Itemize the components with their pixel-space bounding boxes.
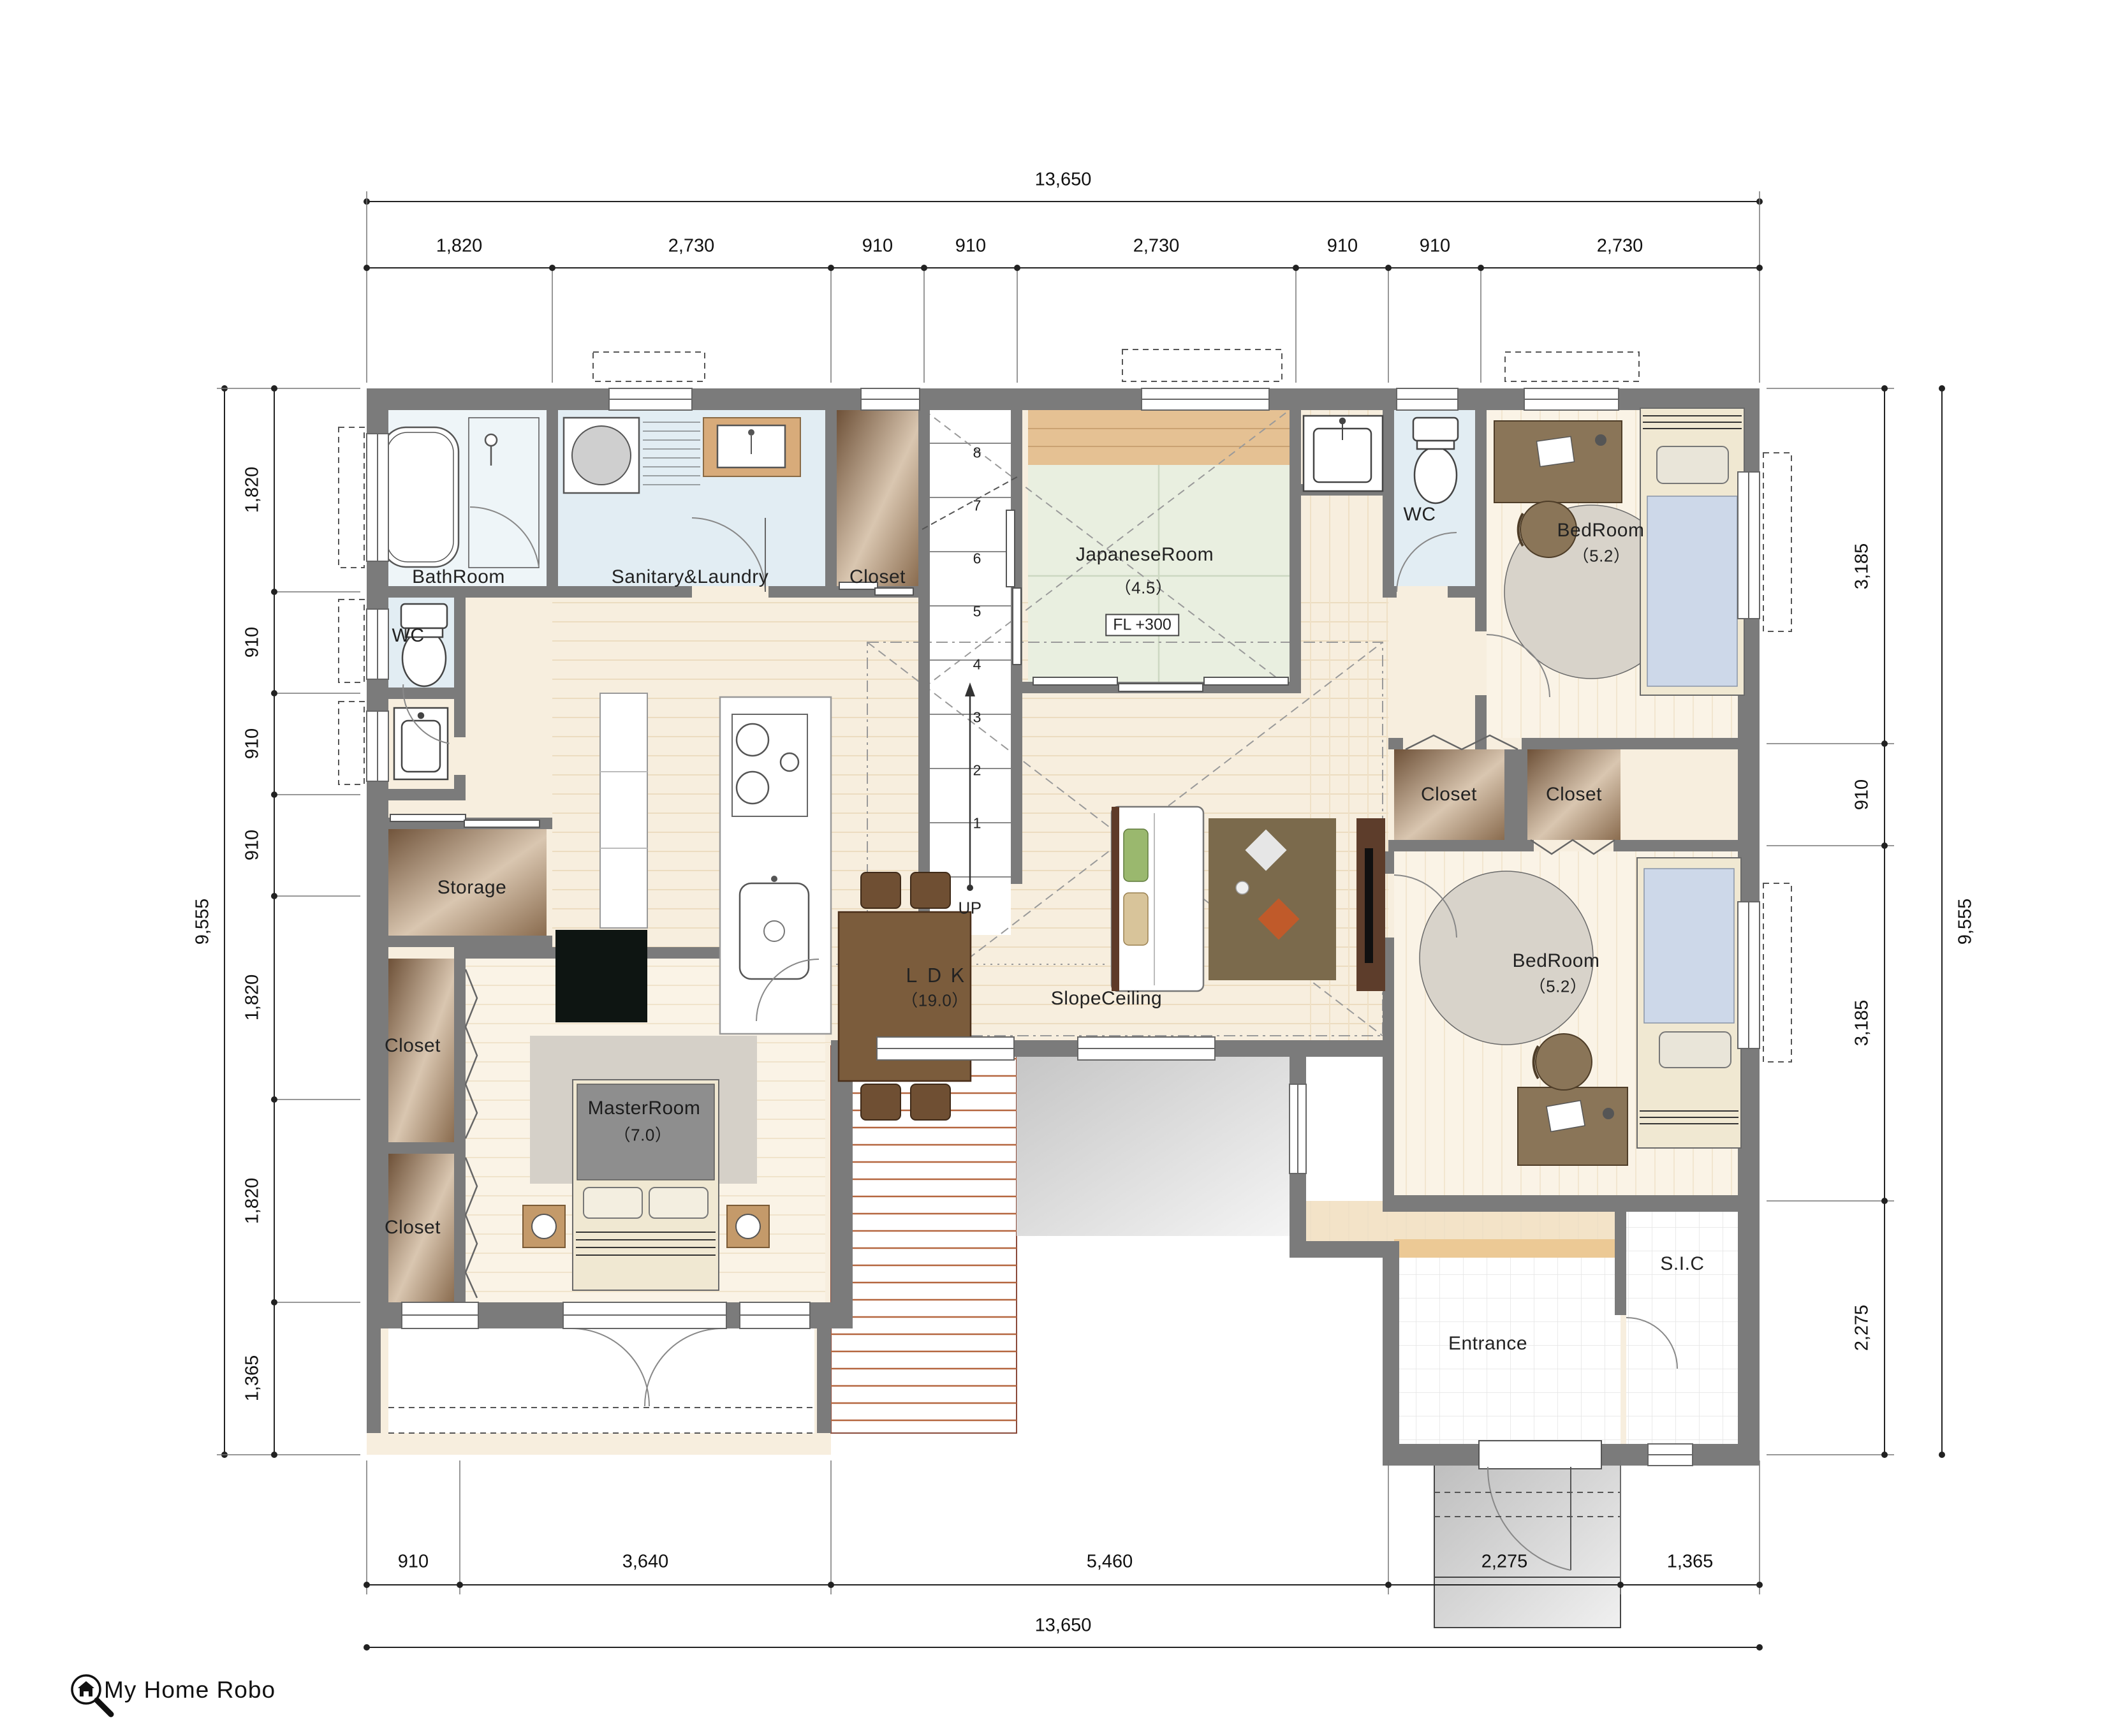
dim-right-total: 9,555	[1955, 899, 1976, 945]
stair-number-5: 5	[973, 603, 981, 621]
stair-number-6: 6	[973, 550, 981, 568]
room-area-bedroom1: （5.2）	[1573, 543, 1631, 567]
room-area-bedroom2: （5.2）	[1529, 974, 1587, 997]
room-label-bedroom1: BedRoom	[1557, 520, 1645, 541]
dim-left-seg-2: 910	[242, 728, 263, 759]
stair-number-4: 4	[973, 656, 981, 673]
dim-bottom-seg-0: 910	[398, 1552, 429, 1573]
wc-top-toilet	[1413, 418, 1458, 503]
room-label-closet-bl-upper: Closet	[385, 1035, 441, 1057]
dim-left-seg-5: 1,820	[242, 1178, 263, 1225]
dim-top-seg-4: 2,730	[1133, 236, 1180, 257]
dim-right-seg-3: 2,275	[1852, 1305, 1873, 1351]
room-label-wc-left: WC	[392, 625, 425, 647]
floor-level-note: FL +300	[1105, 614, 1179, 636]
room-label-bedroom2: BedRoom	[1513, 950, 1600, 972]
room-label-japanese: JapaneseRoom	[1076, 544, 1214, 566]
room-label-master: MasterRoom	[588, 1098, 701, 1119]
room-area-master: （7.0）	[614, 1122, 672, 1146]
room-label-closet-mid-left: Closet	[1421, 784, 1477, 805]
dim-top-total: 13,650	[1035, 170, 1092, 191]
dim-top-seg-0: 1,820	[436, 236, 483, 257]
dim-bottom-seg-3: 2,275	[1481, 1552, 1528, 1573]
room-area-japanese: （4.5）	[1115, 575, 1173, 599]
slope-ceiling-label: SlopeCeiling	[1051, 988, 1162, 1010]
stair-number-1: 1	[973, 815, 981, 832]
dim-top-seg-6: 910	[1420, 236, 1450, 257]
room-label-closet-top: Closet	[849, 566, 906, 588]
dim-right-seg-1: 910	[1852, 779, 1873, 810]
dim-left-seg-4: 1,820	[242, 975, 263, 1021]
dim-left-seg-6: 1,365	[242, 1355, 263, 1402]
floor-plan-page: { "logo": { "text": "My Home Robo" }, "d…	[0, 0, 2102, 1736]
room-label-storage: Storage	[437, 877, 507, 899]
dim-bottom-seg-4: 1,365	[1667, 1552, 1714, 1573]
dim-bottom-seg-1: 3,640	[622, 1552, 669, 1573]
stair-number-2: 2	[973, 762, 981, 779]
dim-top-seg-5: 910	[1327, 236, 1358, 257]
stair-up-label: UP	[958, 899, 981, 918]
dim-right-seg-0: 3,185	[1852, 543, 1873, 590]
dim-bottom-seg-2: 5,460	[1087, 1552, 1133, 1573]
room-label-entrance: Entrance	[1448, 1333, 1527, 1355]
dim-top-seg-3: 910	[955, 236, 986, 257]
room-label-sic: S.I.C	[1660, 1253, 1704, 1275]
dim-right-seg-2: 3,185	[1852, 1000, 1873, 1047]
room-label-wc-top: WC	[1404, 504, 1436, 526]
dim-left-seg-1: 910	[242, 627, 263, 658]
floor-plan-drawing	[0, 0, 2102, 1736]
dim-top-seg-1: 2,730	[668, 236, 715, 257]
room-label-bathroom: BathRoom	[412, 566, 505, 588]
dim-bottom-total: 13,650	[1035, 1615, 1092, 1637]
stair-number-7: 7	[973, 497, 981, 515]
room-label-sanitary: Sanitary&Laundry	[612, 566, 768, 588]
room-area-ldk: （19.0）	[901, 988, 969, 1011]
room-label-closet-mid-right: Closet	[1546, 784, 1602, 805]
dim-top-seg-2: 910	[862, 236, 893, 257]
stair-number-3: 3	[973, 709, 981, 726]
dim-left-total: 9,555	[193, 899, 214, 945]
dim-left-seg-0: 1,820	[242, 467, 263, 513]
stair-number-8: 8	[973, 445, 981, 462]
washbasin-top	[1304, 416, 1383, 491]
room-label-closet-bl-lower: Closet	[385, 1217, 441, 1239]
room-label-ldk: ＬＤＫ	[902, 960, 971, 988]
logo-text: My Home Robo	[104, 1677, 276, 1703]
dim-top-seg-7: 2,730	[1597, 236, 1643, 257]
dim-left-seg-3: 910	[242, 830, 263, 860]
washbasin-left	[394, 708, 448, 779]
